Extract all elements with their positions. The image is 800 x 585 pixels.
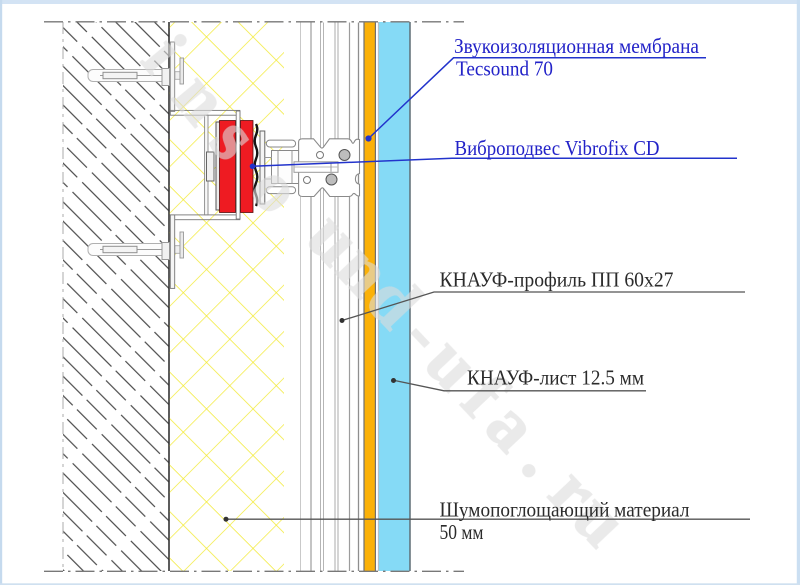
svg-text:КНАУФ-лист 12.5 мм: КНАУФ-лист 12.5 мм — [467, 366, 644, 390]
svg-text:КНАУФ-профиль ПП 60х27: КНАУФ-профиль ПП 60х27 — [440, 267, 674, 291]
svg-text:Звукоизоляционная мембрана: Звукоизоляционная мембрана — [454, 34, 700, 58]
svg-text:Tecsound 70: Tecsound 70 — [456, 57, 553, 81]
svg-text:Шумопоглощающий материал: Шумопоглощающий материал — [440, 497, 690, 521]
svg-text:Виброподвес Vibrofix CD: Виброподвес Vibrofix CD — [455, 136, 660, 160]
svg-text:50 мм: 50 мм — [440, 520, 484, 544]
